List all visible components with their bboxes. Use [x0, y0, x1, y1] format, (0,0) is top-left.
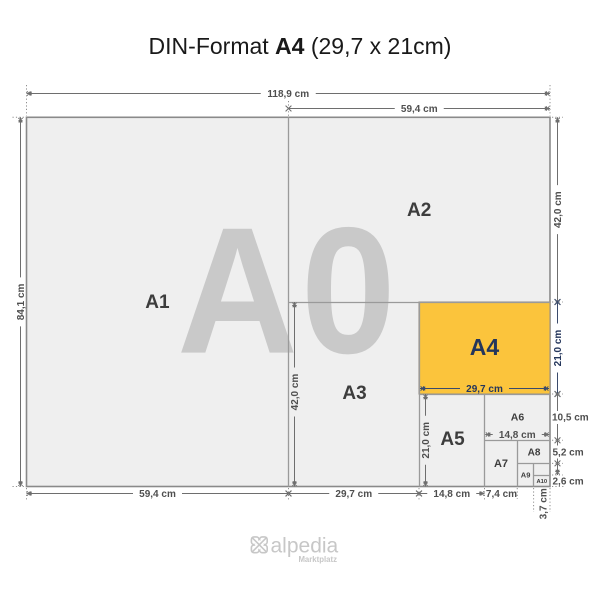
- svg-text:A6: A6: [511, 412, 525, 424]
- svg-text:7,4 cm: 7,4 cm: [486, 489, 517, 500]
- svg-text:59,4 cm: 59,4 cm: [139, 489, 176, 500]
- svg-text:3,7 cm: 3,7 cm: [539, 488, 550, 519]
- svg-text:DIN-Format A4 (29,7 x 21cm): DIN-Format A4 (29,7 x 21cm): [149, 33, 452, 59]
- svg-text:14,8 cm: 14,8 cm: [499, 430, 536, 441]
- svg-text:42,0 cm: 42,0 cm: [290, 374, 301, 411]
- svg-text:A5: A5: [440, 429, 465, 450]
- svg-text:21,0 cm: 21,0 cm: [421, 422, 432, 459]
- svg-text:A: A: [177, 191, 298, 392]
- svg-text:118,9 cm: 118,9 cm: [267, 89, 309, 100]
- svg-text:A2: A2: [407, 200, 431, 221]
- svg-text:84,1 cm: 84,1 cm: [16, 283, 27, 320]
- svg-text:A9: A9: [521, 471, 531, 480]
- svg-text:29,7 cm: 29,7 cm: [335, 489, 372, 500]
- svg-text:29,7 cm: 29,7 cm: [466, 384, 503, 395]
- svg-text:A4: A4: [470, 334, 500, 360]
- svg-text:A3: A3: [342, 383, 366, 404]
- svg-text:0: 0: [301, 191, 396, 392]
- svg-text:A8: A8: [528, 447, 541, 458]
- svg-text:59,4 cm: 59,4 cm: [401, 104, 438, 115]
- svg-text:42,0 cm: 42,0 cm: [553, 191, 564, 228]
- svg-text:2,6 cm: 2,6 cm: [553, 476, 584, 487]
- svg-text:10,5 cm: 10,5 cm: [552, 413, 589, 424]
- svg-text:5,2 cm: 5,2 cm: [553, 447, 584, 458]
- svg-text:A10: A10: [536, 479, 547, 485]
- svg-text:Marktplatz: Marktplatz: [298, 555, 337, 564]
- svg-text:14,8 cm: 14,8 cm: [433, 489, 470, 500]
- svg-text:A1: A1: [145, 292, 170, 313]
- svg-text:A7: A7: [494, 458, 508, 470]
- svg-text:21,0 cm: 21,0 cm: [553, 330, 564, 367]
